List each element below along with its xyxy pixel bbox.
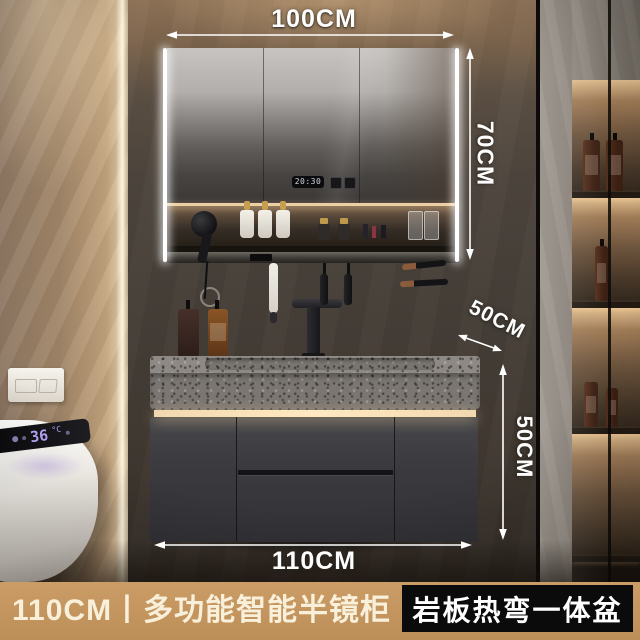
mirror-led-strip-left (163, 48, 167, 262)
soap-dispenser (178, 309, 199, 357)
perfume-bottle (318, 224, 330, 240)
white-bottle (258, 210, 272, 238)
rail-brand-label (250, 254, 272, 261)
mirror-led-strip-right (455, 48, 459, 262)
flush-button (15, 379, 37, 393)
arrowhead (499, 364, 507, 375)
light-button-icon (344, 177, 356, 189)
dimension-arrow-vertical (496, 364, 510, 540)
glass-reflection (572, 0, 610, 582)
razor (320, 263, 328, 305)
spray-icon (22, 436, 26, 440)
arrow-line (466, 338, 493, 348)
arrowhead (458, 335, 468, 342)
dimension-arrow-horizontal (166, 29, 454, 42)
mirror-door-seam (359, 48, 360, 203)
integrated-basin (205, 358, 435, 370)
dimension-arrow-horizontal (154, 539, 472, 552)
under-counter-led (154, 410, 476, 417)
arrowhead (499, 529, 507, 540)
defog-button-icon (330, 177, 342, 189)
toilet-temperature-unit: °C (51, 425, 62, 435)
white-bottle (276, 210, 290, 238)
vanity-cabinet (150, 417, 478, 542)
razor (344, 263, 352, 305)
electric-toothbrush (269, 263, 278, 313)
flush-plate (8, 368, 64, 402)
glass-cup (424, 211, 439, 240)
dimension-label-cabinet-height: 50CM (511, 402, 537, 492)
glass-cup (408, 211, 423, 240)
product-title: 110CM丨多功能智能半镜柜 (12, 582, 391, 640)
arrowhead (492, 345, 502, 352)
mirror-clock-display: 20:30 (292, 176, 324, 188)
perfume-bottle (338, 224, 350, 240)
cabinet-door-seam (236, 417, 237, 541)
arrowhead (461, 541, 472, 549)
lipstick (372, 226, 376, 238)
feature-badge: 岩板热弯一体盆 (402, 585, 633, 632)
cosmetic-stick (363, 224, 368, 238)
drawer-handle-groove (238, 470, 393, 475)
mirror-door-seam (263, 48, 264, 203)
stone-counter-front (150, 373, 480, 410)
dimension-arrow-diagonal (456, 330, 506, 358)
arrowhead (154, 541, 165, 549)
white-bottle (240, 210, 254, 238)
hanging-rail (167, 252, 459, 263)
soap-dispenser (208, 309, 228, 357)
faucet-body (307, 307, 320, 357)
dimension-arrow-vertical (463, 48, 477, 260)
arrowhead (166, 31, 177, 39)
bathroom-product-photo: 20:30 36 °C (0, 0, 640, 640)
cabinet-door-seam (394, 417, 395, 541)
cosmetic-stick (381, 225, 386, 238)
mirror-clock-time: 20:30 (295, 177, 322, 186)
arrowhead (443, 31, 454, 39)
toilet-temperature: 36 (29, 426, 49, 446)
flush-button (38, 379, 57, 393)
arrowhead (466, 48, 474, 59)
glass-partition-frame (536, 0, 540, 582)
arrowhead (466, 249, 474, 260)
seat-heat-icon (12, 436, 19, 443)
toilet-led-glow (6, 452, 84, 480)
wall-led-strip (116, 0, 128, 582)
night-light-icon (65, 430, 69, 434)
